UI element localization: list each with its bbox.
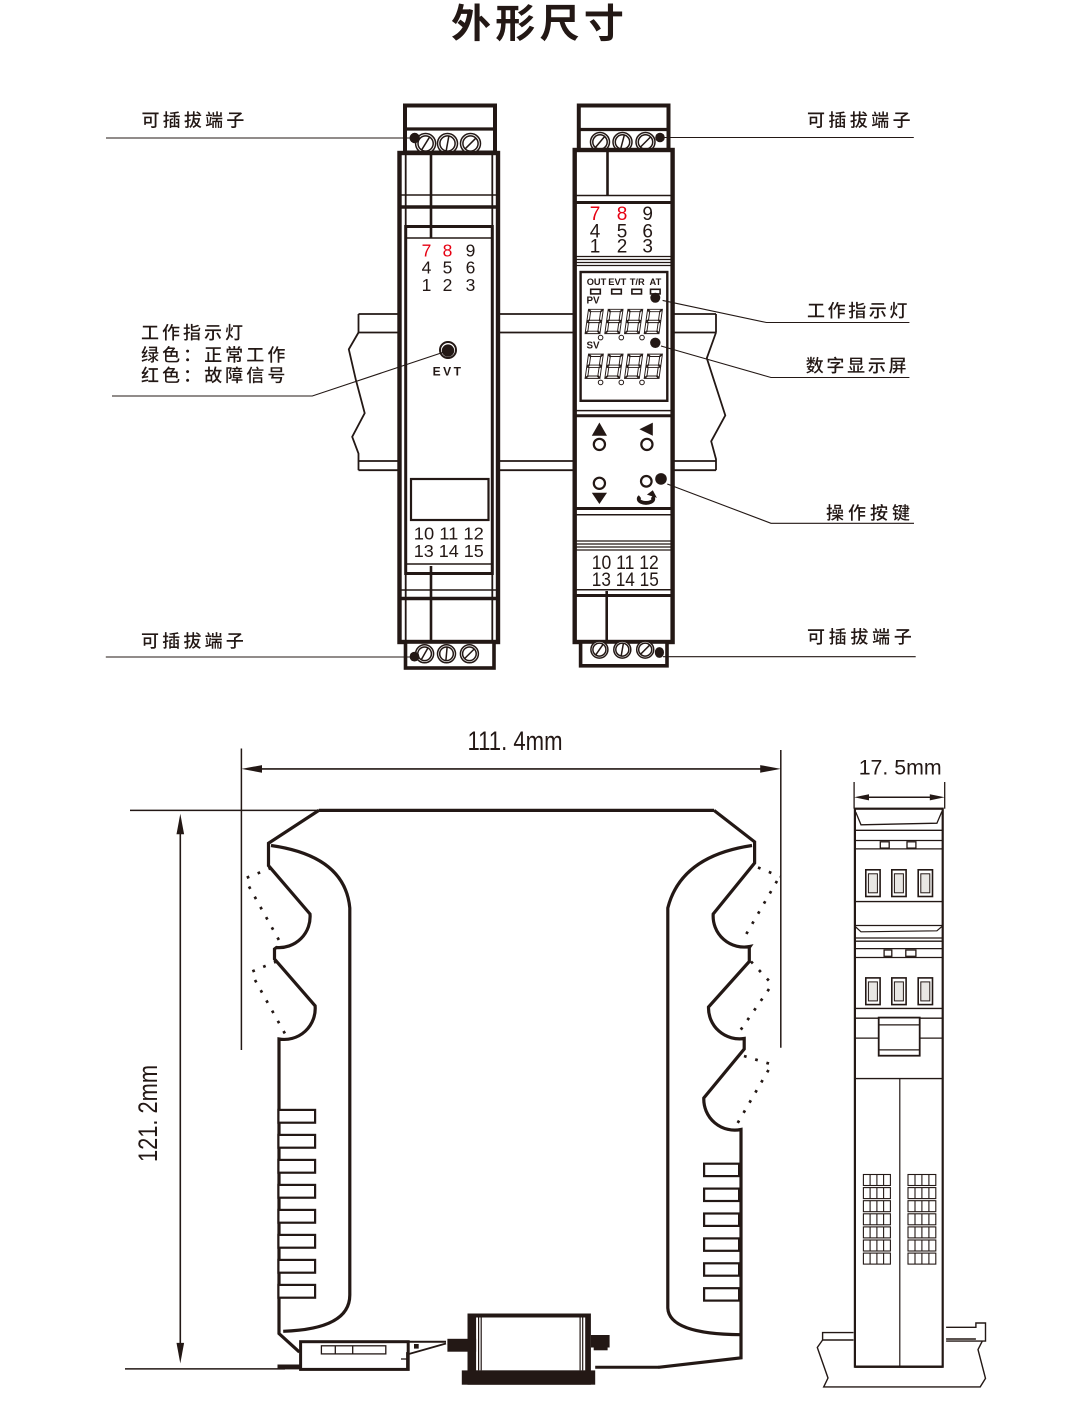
svg-text:2: 2 (443, 275, 453, 295)
svg-text:AT: AT (650, 277, 662, 287)
svg-text:EVT: EVT (608, 277, 626, 287)
svg-text:3: 3 (466, 275, 476, 295)
svg-text:17. 5mm: 17. 5mm (859, 755, 942, 779)
svg-text:1: 1 (590, 236, 601, 257)
svg-text:13 14 15: 13 14 15 (414, 541, 484, 561)
svg-text:2: 2 (617, 236, 628, 257)
svg-text:EVT: EVT (433, 365, 464, 379)
svg-text:13 14 15: 13 14 15 (592, 570, 659, 591)
svg-text:OUT: OUT (587, 277, 607, 287)
svg-text:121. 2mm: 121. 2mm (133, 1065, 163, 1162)
svg-text:PV: PV (587, 296, 601, 307)
svg-text:T/R: T/R (630, 277, 645, 287)
svg-text:1: 1 (422, 275, 432, 295)
svg-text:3: 3 (642, 236, 653, 257)
svg-text:SV: SV (587, 341, 601, 352)
svg-text:111. 4mm: 111. 4mm (468, 726, 563, 756)
